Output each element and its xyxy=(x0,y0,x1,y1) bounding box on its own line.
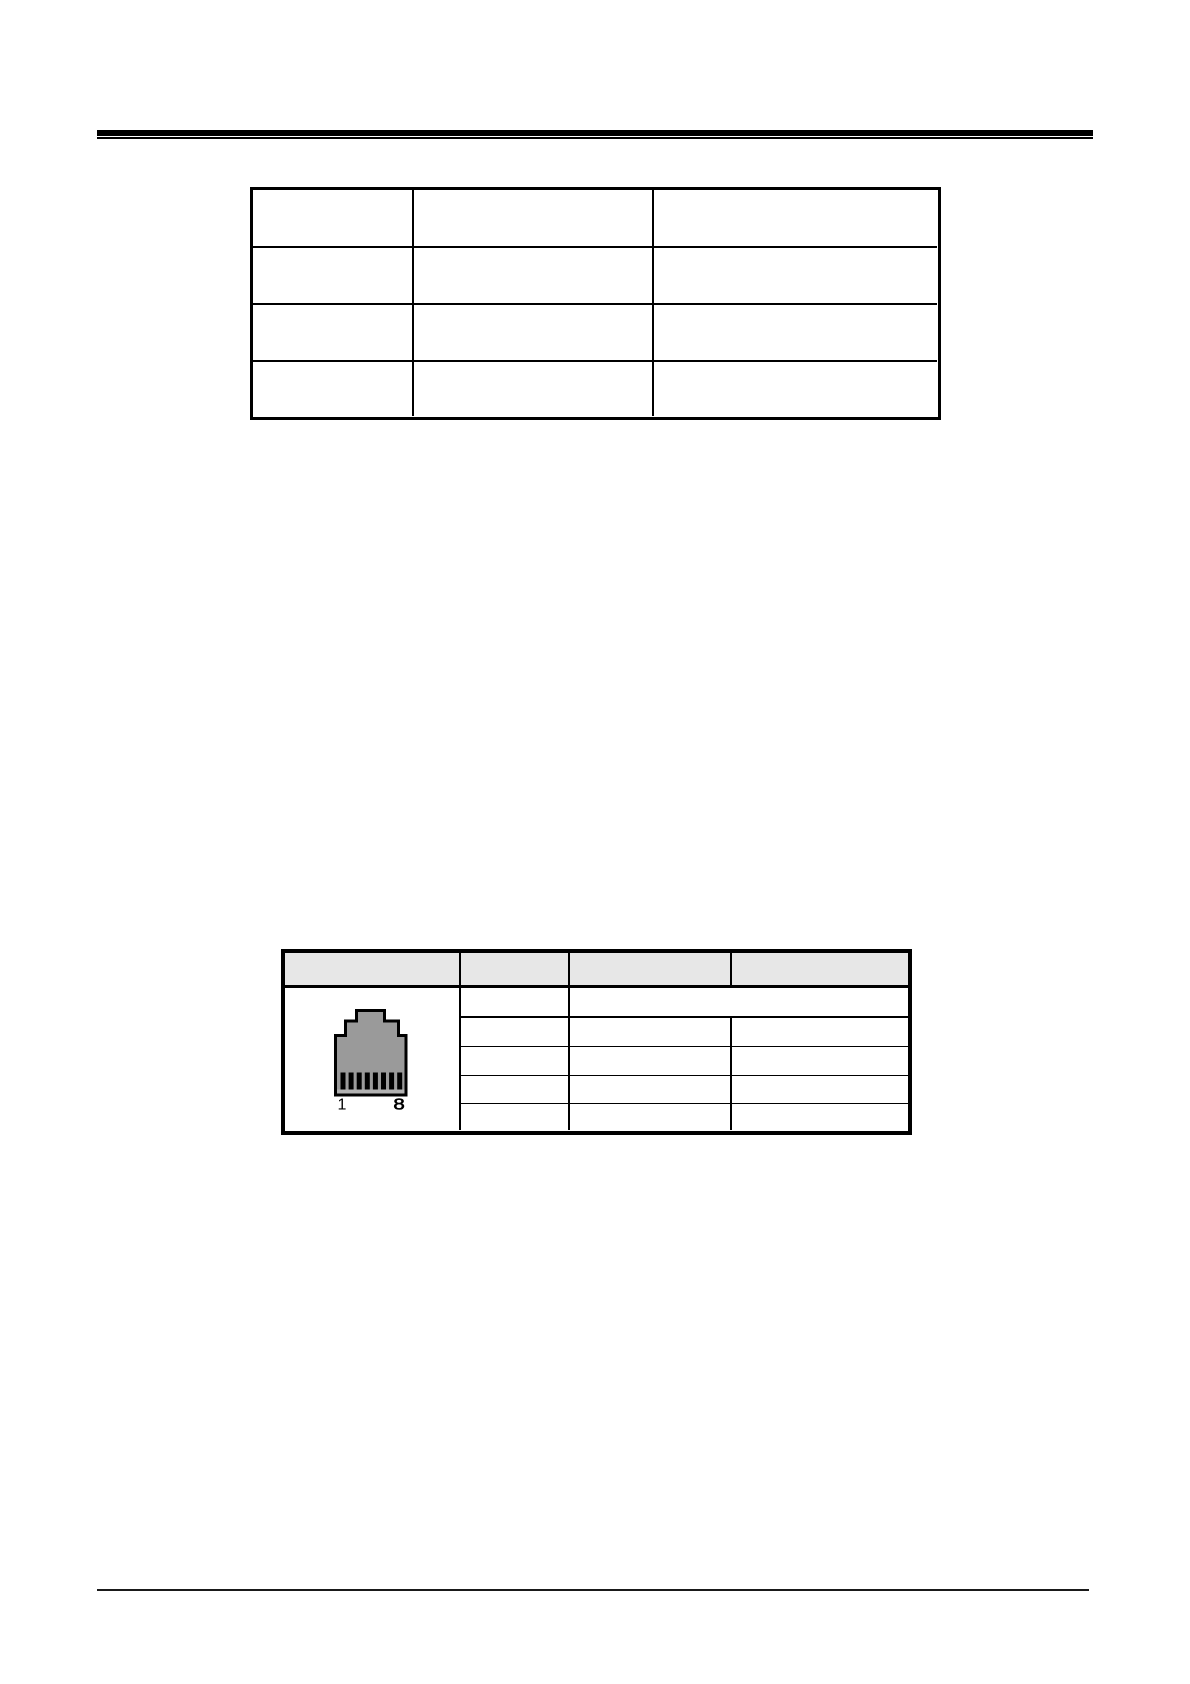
svg-text:1: 1 xyxy=(338,1097,347,1114)
svg-text:8: 8 xyxy=(393,1097,405,1114)
